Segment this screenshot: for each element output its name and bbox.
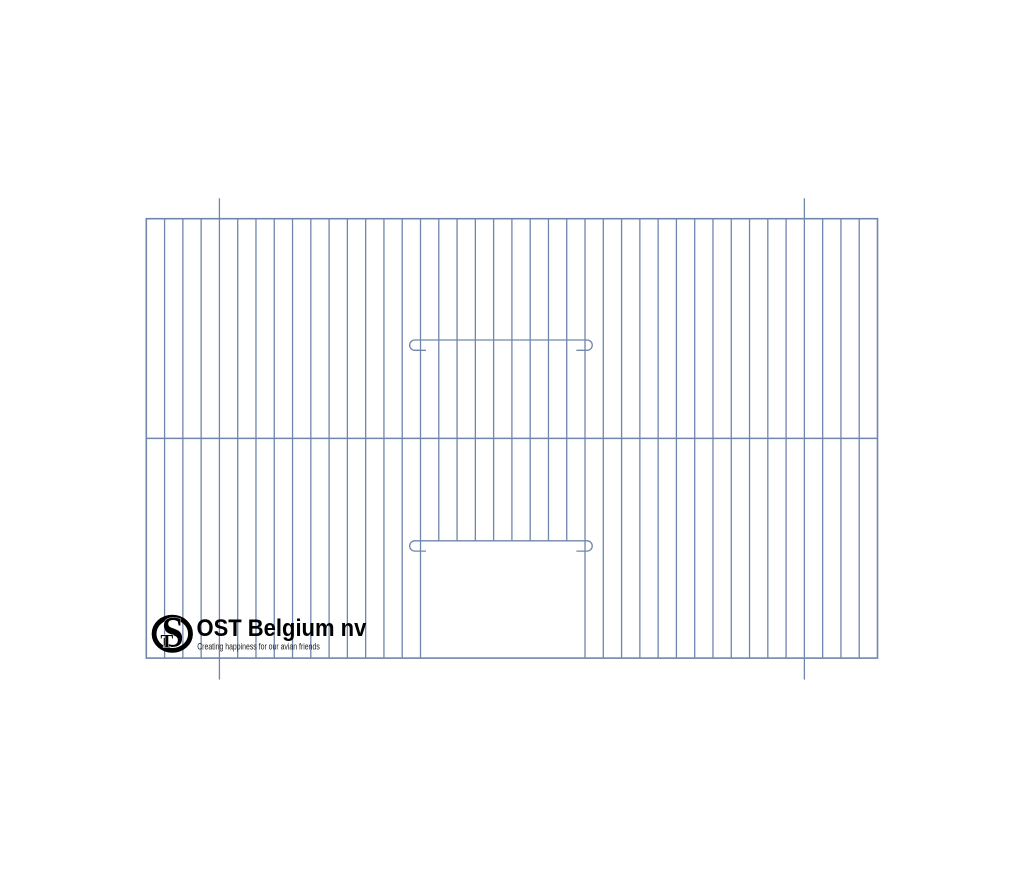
svg-text:OST Belgium nv: OST Belgium nv	[197, 615, 367, 642]
svg-text:Creating happiness for our avi: Creating happiness for our avian friends	[197, 641, 320, 651]
svg-text:T: T	[160, 631, 173, 652]
